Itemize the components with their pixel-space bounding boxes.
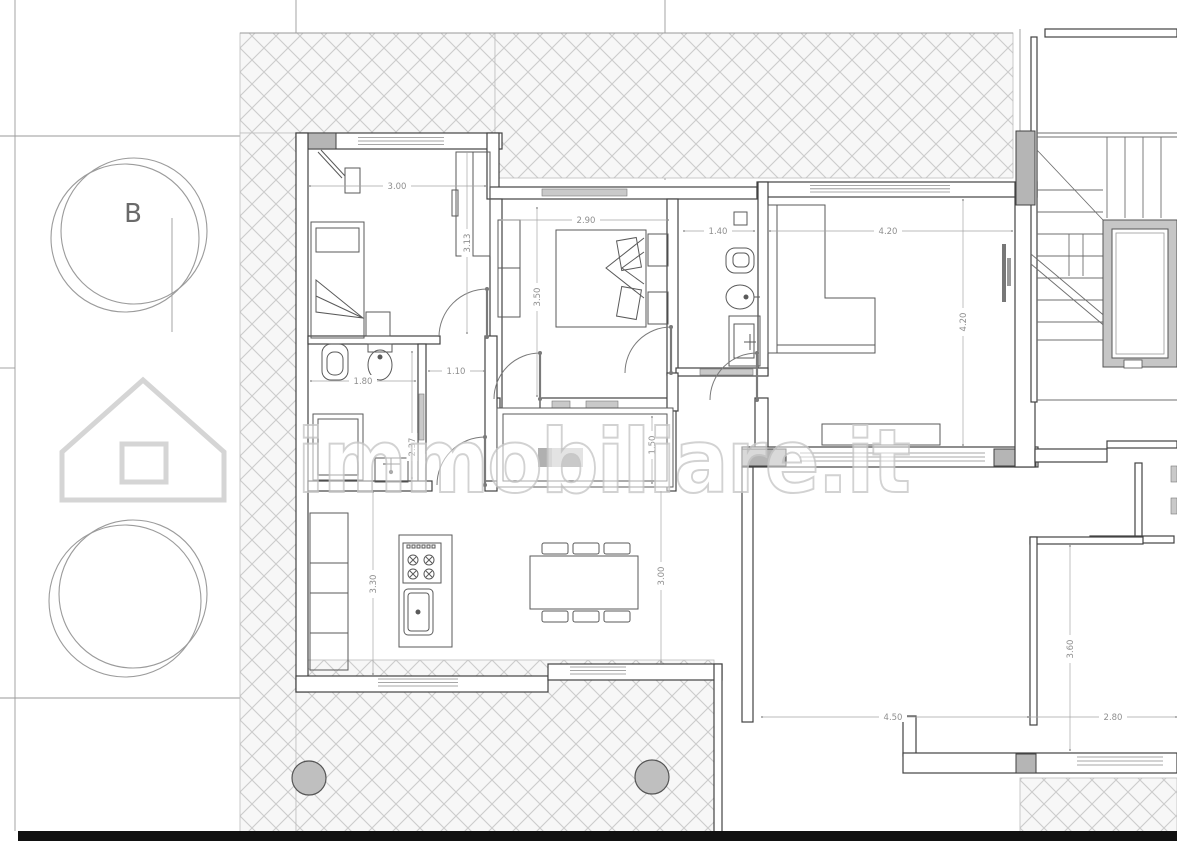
dim-adjacent-room2-depth: 3.60 xyxy=(1065,546,1077,750)
kitchen-sink-icon xyxy=(404,589,433,635)
svg-text:3.00: 3.00 xyxy=(657,567,667,586)
dim-bath1-width: 1.80 xyxy=(311,375,415,387)
sofa-icon xyxy=(768,205,875,353)
chair-icon xyxy=(573,543,599,554)
svg-text:1.10: 1.10 xyxy=(447,367,466,377)
sliding-door-icon xyxy=(586,401,618,408)
toilet-icon xyxy=(726,248,754,273)
svg-text:4.50: 4.50 xyxy=(884,713,903,723)
dim-hallway-width: 1.10 xyxy=(429,365,484,377)
dim-bedroom2-width: 2.90 xyxy=(502,214,668,226)
footer-bar xyxy=(18,831,1177,841)
tree-symbol-2 xyxy=(49,520,207,677)
window-icon xyxy=(1171,466,1177,482)
stove-icon xyxy=(403,543,441,583)
svg-text:4.20: 4.20 xyxy=(879,227,898,237)
dim-living-width: 4.20 xyxy=(770,225,1012,237)
elevator xyxy=(1103,220,1177,368)
dim-bedroom2-depth: 3.50 xyxy=(532,208,544,396)
floor-plan-drawing: B xyxy=(0,0,1177,841)
elevator-door-icon xyxy=(1124,360,1142,368)
watermark-house-icon xyxy=(62,380,224,500)
dining-table-icon xyxy=(530,543,638,622)
sliding-door-icon xyxy=(552,401,570,408)
bedroom2-furniture xyxy=(498,220,668,327)
dim-kitchen-depth-left: 3.30 xyxy=(368,492,380,674)
kitchen-cabinets-icon xyxy=(310,513,348,670)
dim-bath2-width: 1.40 xyxy=(684,225,754,237)
tv-icon xyxy=(1002,244,1011,302)
door-bath2 xyxy=(625,325,673,375)
door-bedroom1 xyxy=(439,287,489,339)
column-icon xyxy=(635,760,669,794)
tree-label: B xyxy=(124,199,142,229)
tree-symbol-b: B xyxy=(51,158,207,332)
chair-icon xyxy=(573,611,599,622)
dim-bedroom1-width: 3.00 xyxy=(310,180,485,192)
svg-text:4.20: 4.20 xyxy=(959,313,969,332)
floor-plan-page: B xyxy=(0,0,1177,841)
svg-text:3.30: 3.30 xyxy=(369,575,379,594)
living-room-furniture xyxy=(768,205,1011,445)
curtain-icon xyxy=(318,150,345,178)
adjacent-unit-walls xyxy=(903,441,1177,773)
chair-icon xyxy=(542,543,568,554)
svg-text:1.40: 1.40 xyxy=(709,227,728,237)
window-icon xyxy=(734,212,747,225)
svg-text:2.80: 2.80 xyxy=(1104,713,1123,723)
chair-icon xyxy=(542,611,568,622)
svg-text:3.00: 3.00 xyxy=(388,182,407,192)
double-bed-icon xyxy=(556,230,668,327)
bidet-icon xyxy=(368,344,392,380)
svg-text:1.80: 1.80 xyxy=(354,377,373,387)
window-icon xyxy=(542,189,627,196)
nightstand-icon xyxy=(648,234,668,266)
chair-icon xyxy=(604,611,630,622)
sliding-door-icon xyxy=(700,369,753,375)
kitchen-island-icon xyxy=(399,535,452,647)
window-icon xyxy=(1171,498,1177,514)
svg-text:3.60: 3.60 xyxy=(1066,640,1076,659)
dim-adjacent-room2-width: 2.80 xyxy=(1028,711,1176,723)
svg-text:2.90: 2.90 xyxy=(577,216,596,226)
nightstand-icon xyxy=(648,292,668,324)
staircase xyxy=(1016,29,1177,402)
radiator-icon xyxy=(345,168,360,193)
svg-text:3.13: 3.13 xyxy=(463,234,473,253)
dim-kitchen-depth-right: 3.00 xyxy=(656,492,668,662)
toilet-icon xyxy=(322,344,348,380)
dim-bedroom1-depth: 3.13 xyxy=(462,152,474,333)
bidet-icon xyxy=(726,285,760,309)
kitchen-furniture xyxy=(310,513,638,670)
watermark-text: immobiliare.it xyxy=(297,410,910,513)
dim-adjacent-room-width: 4.50 xyxy=(762,711,1028,723)
column-icon xyxy=(292,761,326,795)
single-bed-icon xyxy=(311,222,390,338)
chair-icon xyxy=(604,543,630,554)
dim-living-depth: 4.20 xyxy=(958,200,970,445)
svg-text:3.50: 3.50 xyxy=(533,288,543,307)
